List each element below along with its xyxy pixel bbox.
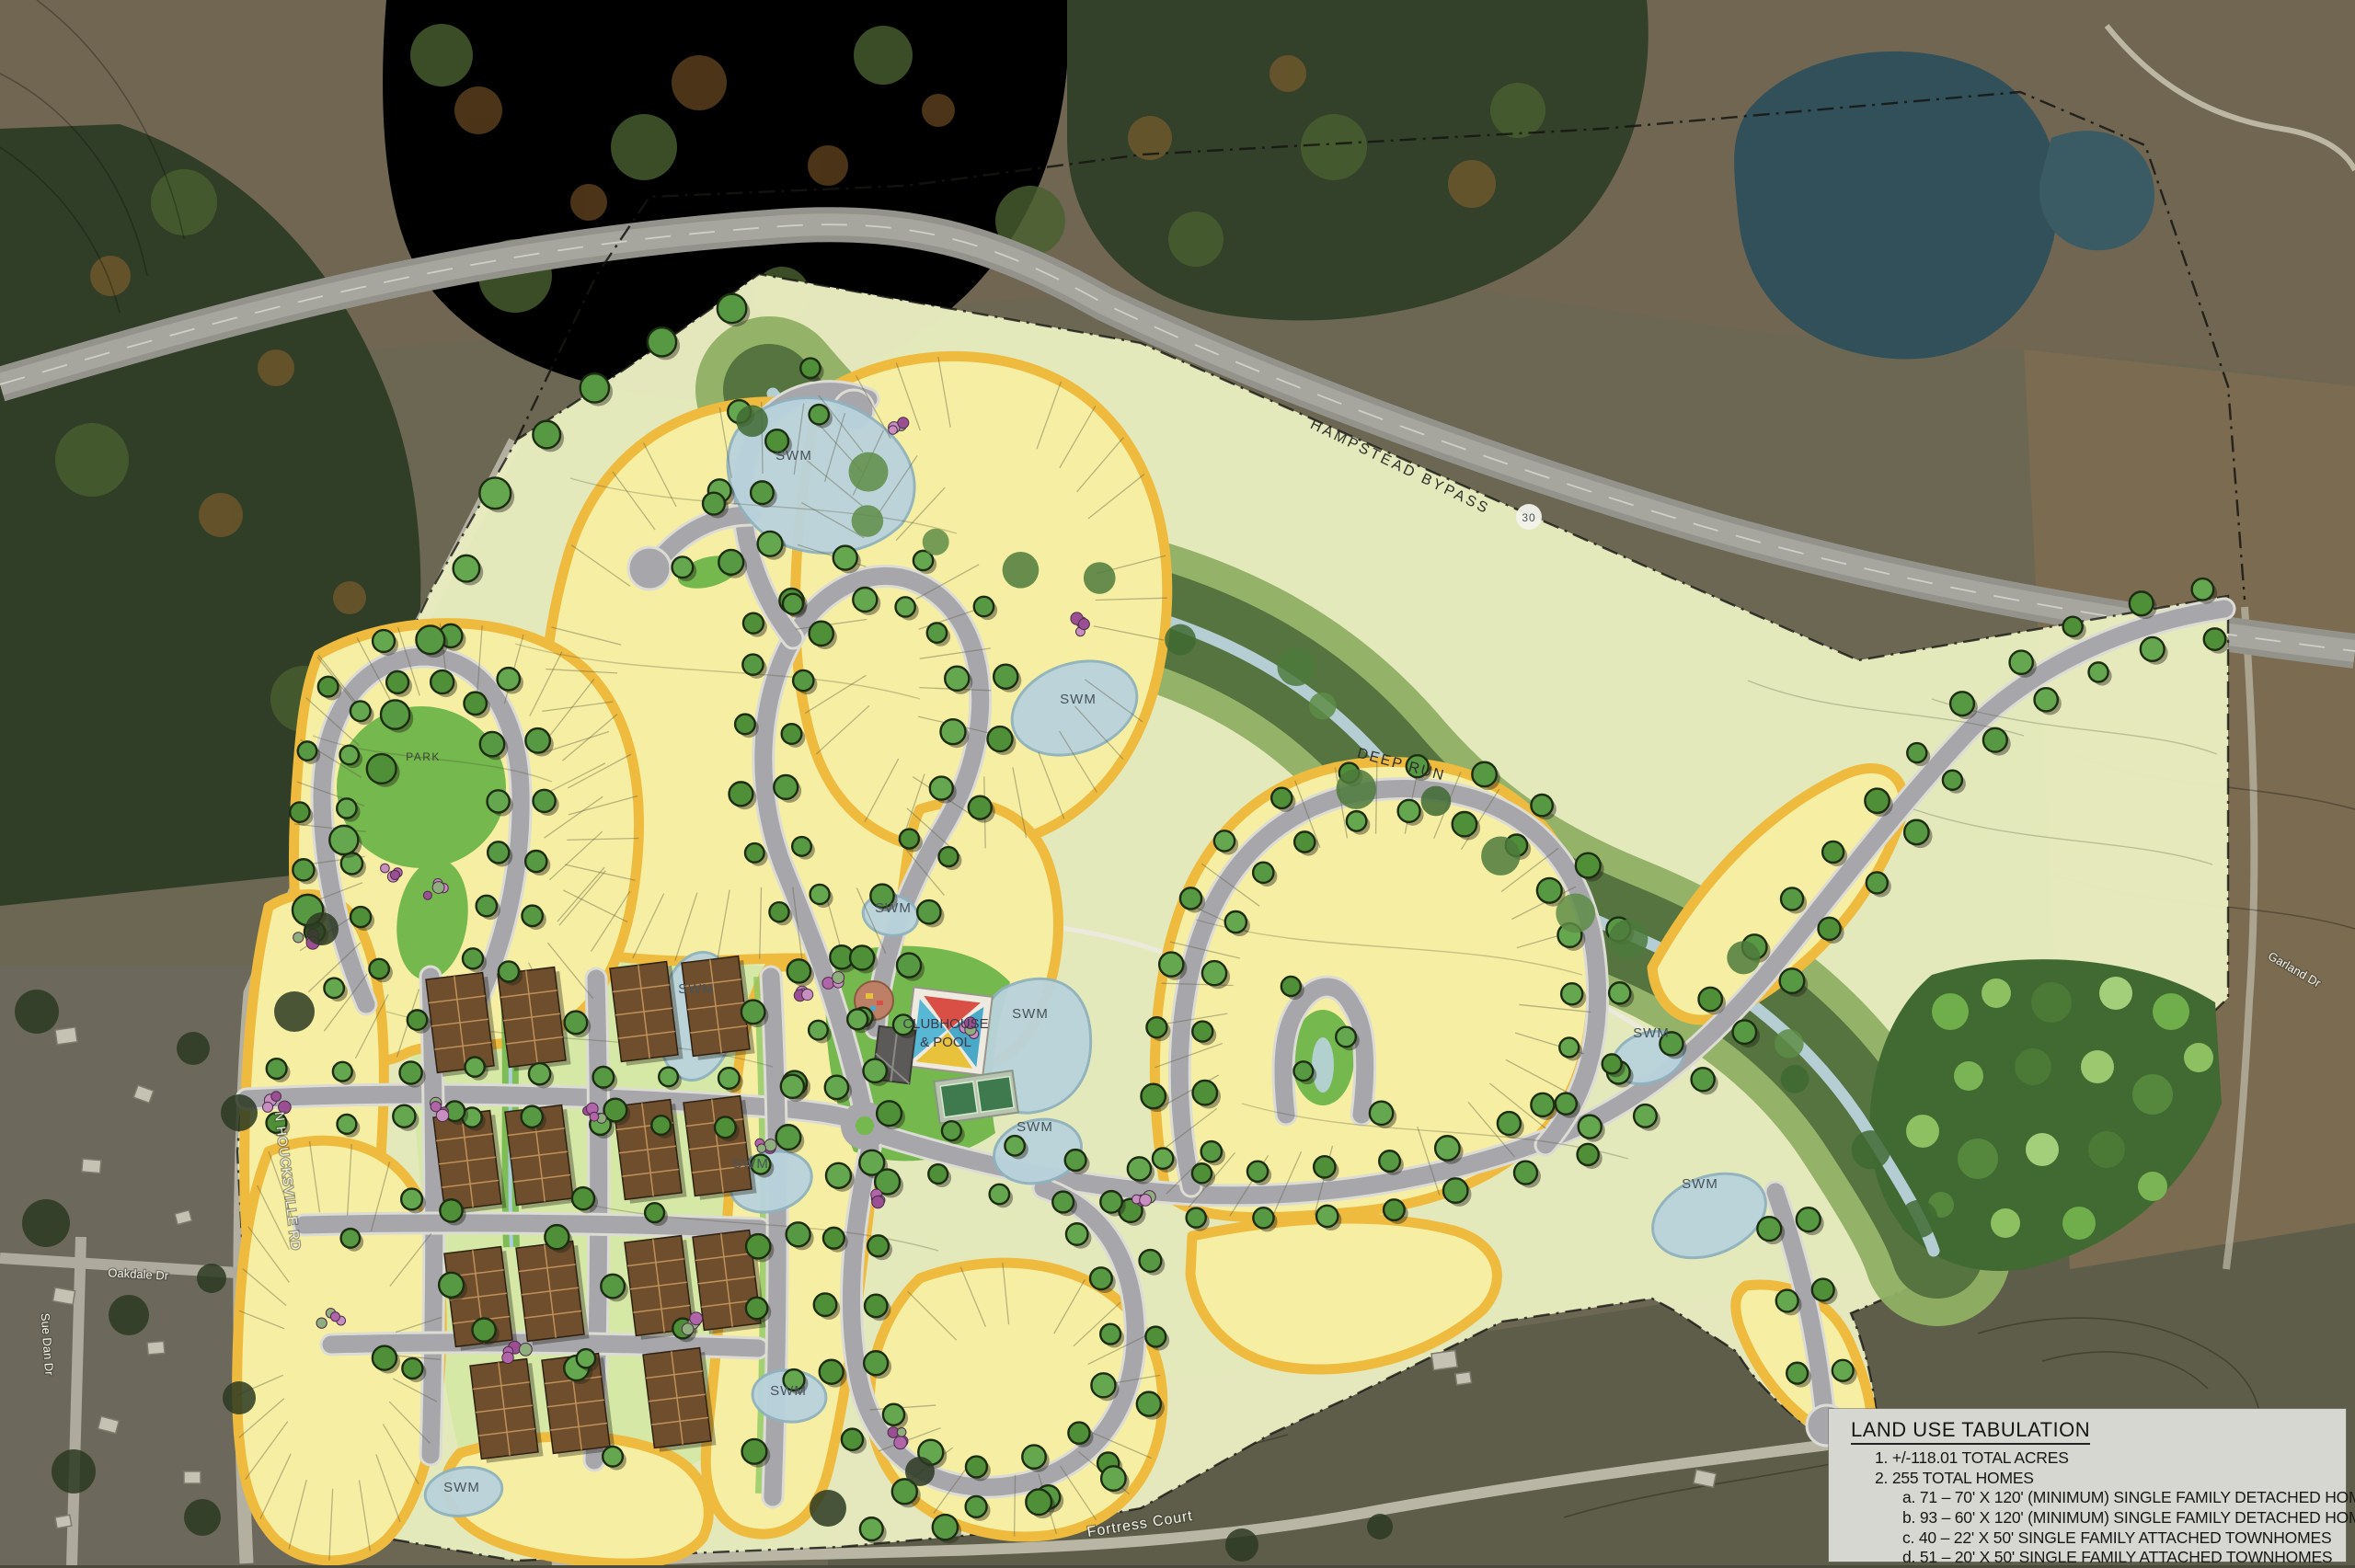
- tree-symbol-icon: [1537, 878, 1562, 903]
- tree-symbol-icon: [1733, 1020, 1756, 1043]
- aerial-tree: [305, 912, 339, 945]
- aerial-tree: [1225, 1528, 1258, 1562]
- tree-symbol-icon: [826, 1163, 851, 1188]
- tree-symbol-icon: [793, 670, 813, 691]
- tree-symbol-icon: [2204, 628, 2225, 649]
- tree-symbol-icon: [2010, 651, 2033, 674]
- tree-symbol-icon: [928, 1164, 948, 1184]
- shrub-icon: [502, 1352, 513, 1363]
- route-shield-number: 30: [1522, 511, 1535, 524]
- aerial-tree: [223, 1381, 256, 1414]
- forest-tree-icon: [1609, 920, 1648, 958]
- tree-symbol-icon: [1435, 1136, 1459, 1160]
- tree-symbol-icon: [373, 630, 395, 652]
- townhome-block: [516, 1241, 590, 1345]
- tree-symbol-icon: [529, 1063, 550, 1084]
- tree-symbol-icon: [1180, 887, 1201, 909]
- tree-symbol-icon: [1379, 1150, 1400, 1172]
- forest-tree-icon: [1775, 1029, 1803, 1058]
- swm-label: SWM: [875, 900, 912, 916]
- forest-tree-icon: [849, 452, 889, 492]
- tree-symbol-icon: [940, 719, 965, 744]
- legend-item-th-22: c. 40 – 22' X 50' SINGLE FAMILY ATTACHED…: [1902, 1528, 2346, 1549]
- shrub-icon: [432, 882, 444, 894]
- tree-symbol-icon: [1950, 692, 1974, 715]
- shrub-icon: [262, 1102, 272, 1112]
- aerial-tree: [810, 1490, 846, 1527]
- tree-symbol-icon: [350, 907, 371, 927]
- tree-symbol-icon: [601, 1275, 625, 1299]
- land-use-tabulation: LAND USE TABULATION 1. +/-118.01 TOTAL A…: [1829, 1409, 2346, 1562]
- tree-symbol-icon: [1187, 1208, 1206, 1228]
- tree-symbol-icon: [290, 802, 309, 821]
- shrub-icon: [590, 1112, 599, 1121]
- tree-symbol-icon: [1201, 1141, 1222, 1162]
- tree-symbol-icon: [2063, 617, 2083, 636]
- tree-symbol-icon: [1453, 812, 1476, 836]
- aerial-tree: [905, 1457, 935, 1486]
- shrub-icon: [802, 989, 813, 1000]
- shrub-icon: [757, 1144, 766, 1153]
- swm-label: SWM: [770, 1383, 807, 1399]
- tree-symbol-icon: [1578, 1144, 1599, 1165]
- tree-symbol-icon: [825, 1076, 848, 1099]
- tree-symbol-icon: [1370, 1102, 1393, 1125]
- tree-symbol-icon: [933, 1515, 958, 1539]
- tree-symbol-icon: [735, 715, 755, 735]
- tree-symbol-icon: [718, 294, 747, 324]
- legend-title: LAND USE TABULATION: [1851, 1418, 2090, 1445]
- tree-symbol-icon: [1141, 1084, 1165, 1108]
- tree-symbol-icon: [1904, 820, 1928, 844]
- tree-symbol-icon: [1757, 1217, 1781, 1241]
- tree-symbol-icon: [648, 327, 676, 356]
- tree-symbol-icon: [745, 843, 764, 863]
- tree-symbol-icon: [1159, 953, 1183, 977]
- tree-symbol-icon: [672, 556, 694, 578]
- park-label: PARK: [406, 750, 441, 763]
- tree-symbol-icon: [930, 777, 953, 800]
- tree-symbol-icon: [464, 692, 486, 715]
- tree-symbol-icon: [758, 532, 783, 556]
- tree-symbol-icon: [860, 1517, 883, 1540]
- tree-symbol-icon: [577, 1349, 595, 1368]
- tree-symbol-icon: [1832, 1360, 1854, 1381]
- tree-symbol-icon: [809, 1021, 828, 1040]
- shrub-icon: [682, 1323, 694, 1335]
- tree-symbol-icon: [350, 701, 371, 721]
- tree-symbol-icon: [465, 1057, 484, 1076]
- tree-symbol-icon: [333, 1062, 352, 1082]
- tree-symbol-icon: [2130, 591, 2154, 615]
- forest-tree-icon: [1421, 786, 1452, 817]
- tree-symbol-icon: [1066, 1223, 1088, 1245]
- existing-house: [1455, 1372, 1472, 1385]
- tree-symbol-icon: [865, 1295, 888, 1318]
- forest-tree-icon: [1336, 769, 1376, 809]
- existing-house: [184, 1471, 201, 1483]
- tree-symbol-icon: [439, 1273, 464, 1298]
- tree-symbol-icon: [776, 1125, 801, 1150]
- tree-symbol-icon: [2035, 688, 2058, 711]
- tree-symbol-icon: [1137, 1392, 1161, 1416]
- tree-symbol-icon: [267, 1059, 287, 1079]
- swm-label: SWM: [1017, 1119, 1053, 1135]
- townhome-block: [426, 972, 500, 1077]
- tree-symbol-icon: [1005, 1136, 1024, 1155]
- legend-item-sfd-70: a. 71 – 70' X 120' (MINIMUM) SINGLE FAMI…: [1902, 1488, 2346, 1508]
- shrub-icon: [833, 971, 844, 983]
- tree-symbol-icon: [938, 847, 958, 866]
- tree-symbol-icon: [340, 746, 359, 764]
- tree-symbol-icon: [1609, 982, 1630, 1003]
- tree-symbol-icon: [810, 405, 829, 424]
- tree-symbol-icon: [945, 667, 969, 691]
- tree-symbol-icon: [1100, 1191, 1122, 1213]
- tree-symbol-icon: [900, 830, 919, 849]
- tree-symbol-icon: [994, 665, 1017, 689]
- tree-symbol-icon: [329, 826, 358, 854]
- shrub-icon: [520, 1343, 533, 1356]
- tree-symbol-icon: [1819, 918, 1841, 940]
- tree-symbol-icon: [1514, 1162, 1537, 1185]
- tree-symbol-icon: [810, 622, 833, 646]
- tree-symbol-icon: [769, 902, 788, 921]
- shrub-icon: [390, 870, 399, 879]
- shrub-icon: [316, 1318, 327, 1328]
- tree-symbol-icon: [1561, 983, 1582, 1004]
- tree-symbol-icon: [338, 1115, 357, 1134]
- tree-symbol-icon: [810, 885, 830, 904]
- tree-symbol-icon: [545, 1225, 569, 1249]
- existing-house: [82, 1159, 101, 1173]
- tree-symbol-icon: [1907, 743, 1926, 762]
- tree-symbol-icon: [1867, 872, 1888, 893]
- forest-tree-icon: [1003, 552, 1040, 589]
- aerial-tree: [274, 991, 315, 1032]
- tree-symbol-icon: [659, 1068, 678, 1087]
- townhome-block: [684, 1095, 757, 1200]
- tree-symbol-icon: [522, 906, 542, 926]
- tree-symbol-icon: [751, 481, 774, 504]
- tree-symbol-icon: [1780, 968, 1805, 993]
- tree-symbol-icon: [408, 1010, 427, 1029]
- tree-symbol-icon: [966, 1457, 987, 1478]
- tree-symbol-icon: [1472, 762, 1496, 786]
- tree-symbol-icon: [1865, 789, 1889, 813]
- tree-symbol-icon: [917, 900, 940, 923]
- tree-symbol-icon: [850, 945, 874, 969]
- tree-symbol-icon: [386, 671, 408, 693]
- tree-symbol-icon: [298, 741, 316, 760]
- swm-label: SWM: [678, 981, 715, 997]
- forest-tree-icon: [852, 505, 884, 537]
- tree-symbol-icon: [1202, 961, 1226, 985]
- tree-symbol-icon: [416, 625, 444, 654]
- forest-tree-icon: [1165, 624, 1196, 656]
- tree-symbol-icon: [480, 732, 504, 756]
- tree-symbol-icon: [792, 837, 811, 856]
- tree-symbol-icon: [479, 477, 511, 509]
- tree-symbol-icon: [2088, 662, 2108, 681]
- tree-symbol-icon: [942, 1121, 961, 1140]
- tree-symbol-icon: [867, 1235, 889, 1256]
- tree-symbol-icon: [603, 1447, 623, 1467]
- legend-item-total-acres: 1. +/-118.01 TOTAL ACRES: [1875, 1448, 2346, 1469]
- tree-symbol-icon: [1214, 830, 1235, 851]
- clubhouse-pool-label: & POOL: [920, 1035, 971, 1050]
- tree-symbol-icon: [402, 1358, 422, 1379]
- tree-symbol-icon: [645, 1203, 664, 1222]
- tree-symbol-icon: [373, 1346, 396, 1370]
- forest-tree-icon: [1084, 562, 1116, 594]
- aerial-tree: [177, 1032, 210, 1065]
- tree-symbol-icon: [974, 597, 994, 616]
- tree-symbol-icon: [1293, 1061, 1313, 1081]
- tree-symbol-icon: [1140, 1250, 1162, 1272]
- tree-symbol-icon: [1781, 887, 1803, 910]
- tree-symbol-icon: [842, 1429, 863, 1450]
- tree-symbol-icon: [1812, 1279, 1834, 1301]
- tree-symbol-icon: [1531, 1093, 1554, 1116]
- aerial-tree: [1367, 1514, 1393, 1539]
- forest-tree-icon: [1481, 837, 1520, 876]
- tree-symbol-icon: [847, 1009, 867, 1029]
- tree-symbol-icon: [1271, 788, 1292, 808]
- swm-label: SWM: [1060, 692, 1097, 707]
- forest-tree-icon: [736, 406, 767, 437]
- shrub-icon: [690, 1312, 703, 1325]
- swm-label: SWM: [1633, 1025, 1670, 1041]
- tree-symbol-icon: [1347, 811, 1367, 831]
- tree-symbol-icon: [401, 1189, 422, 1210]
- tree-symbol-icon: [746, 1234, 770, 1258]
- tree-symbol-icon: [883, 1404, 904, 1425]
- tree-symbol-icon: [1314, 1156, 1335, 1177]
- swm-label: SWM: [1682, 1176, 1718, 1192]
- tree-symbol-icon: [1556, 1093, 1577, 1115]
- swm-label: SWM: [732, 1156, 769, 1172]
- tree-symbol-icon: [1398, 800, 1420, 822]
- tree-symbol-icon: [987, 727, 1012, 751]
- existing-house: [52, 1288, 75, 1305]
- tree-symbol-icon: [896, 597, 915, 616]
- tree-symbol-icon: [1192, 1163, 1212, 1183]
- tree-symbol-icon: [580, 373, 609, 402]
- aerial-tree: [197, 1264, 226, 1293]
- tree-symbol-icon: [341, 1229, 361, 1248]
- townhome-block: [470, 1358, 544, 1463]
- tree-symbol-icon: [463, 948, 483, 968]
- tree-symbol-icon: [1225, 911, 1246, 933]
- tree-symbol-icon: [1797, 1207, 1821, 1231]
- forest-tree-icon: [1309, 692, 1336, 719]
- tree-symbol-icon: [1776, 1290, 1798, 1312]
- tree-symbol-icon: [1559, 1037, 1579, 1057]
- site-plan: HAMPSTEAD BYPASSDEEP RUNPARKCLUBHOUSE& P…: [0, 0, 2355, 1565]
- existing-house: [55, 1027, 77, 1045]
- tree-symbol-icon: [729, 782, 752, 806]
- tree-symbol-icon: [853, 588, 877, 612]
- tree-symbol-icon: [565, 1012, 588, 1035]
- tree-symbol-icon: [863, 1059, 886, 1082]
- tree-symbol-icon: [969, 796, 992, 819]
- tree-symbol-icon: [1943, 771, 1962, 790]
- tree-symbol-icon: [454, 555, 480, 582]
- shrub-icon: [1140, 1194, 1152, 1206]
- townhome-block: [610, 961, 684, 1066]
- tree-symbol-icon: [525, 728, 549, 752]
- tree-symbol-icon: [498, 668, 520, 690]
- aerial-tree: [109, 1295, 149, 1335]
- tree-symbol-icon: [782, 724, 802, 744]
- aerial-tree: [184, 1499, 221, 1536]
- tree-symbol-icon: [440, 1199, 462, 1221]
- tree-symbol-icon: [715, 1116, 736, 1138]
- tree-symbol-icon: [743, 613, 764, 634]
- tree-symbol-icon: [477, 896, 497, 916]
- shrub-icon: [293, 933, 304, 943]
- tree-symbol-icon: [1692, 1068, 1715, 1091]
- tree-symbol-icon: [1065, 1150, 1086, 1171]
- tree-symbol-icon: [1253, 863, 1273, 883]
- tree-symbol-icon: [1253, 1207, 1273, 1228]
- forest-tree-icon: [1556, 893, 1595, 933]
- tree-symbol-icon: [534, 790, 556, 812]
- tree-symbol-icon: [990, 1185, 1009, 1204]
- tree-symbol-icon: [877, 1101, 902, 1126]
- tree-symbol-icon: [742, 655, 763, 675]
- shrub-icon: [889, 426, 898, 435]
- tree-symbol-icon: [525, 851, 546, 872]
- tree-symbol-icon: [1576, 853, 1601, 878]
- tree-symbol-icon: [783, 594, 803, 614]
- swm-label: SWM: [775, 448, 812, 464]
- forest-tree-icon: [1900, 1200, 1937, 1238]
- tree-symbol-icon: [2141, 637, 2165, 661]
- tree-symbol-icon: [533, 421, 560, 449]
- tree-symbol-icon: [1068, 1423, 1089, 1444]
- tree-symbol-icon: [499, 961, 519, 981]
- site-plan-map: HAMPSTEAD BYPASSDEEP RUNPARKCLUBHOUSE& P…: [0, 0, 2355, 1565]
- tree-symbol-icon: [1983, 728, 2007, 752]
- shrub-icon: [271, 1092, 281, 1102]
- tree-symbol-icon: [774, 775, 798, 799]
- tree-symbol-icon: [522, 1106, 543, 1127]
- tree-symbol-icon: [1101, 1466, 1126, 1491]
- shrub-icon: [431, 1102, 441, 1112]
- clubhouse-pool-label: CLUBHOUSE: [902, 1016, 988, 1032]
- tree-symbol-icon: [1146, 1017, 1166, 1037]
- tree-symbol-icon: [1294, 831, 1315, 852]
- tree-symbol-icon: [593, 1067, 615, 1088]
- tree-symbol-icon: [864, 1351, 888, 1375]
- tree-symbol-icon: [742, 1439, 767, 1464]
- shrub-icon: [381, 864, 390, 873]
- tree-symbol-icon: [746, 1298, 767, 1319]
- tree-symbol-icon: [927, 623, 947, 642]
- shrub-icon: [330, 1312, 339, 1322]
- tree-symbol-icon: [1128, 1157, 1151, 1180]
- tree-symbol-icon: [814, 1293, 837, 1316]
- tree-symbol-icon: [1281, 977, 1301, 996]
- swm-label: SWM: [1012, 1006, 1049, 1022]
- tree-symbol-icon: [1153, 1148, 1173, 1168]
- tree-symbol-icon: [781, 1075, 804, 1098]
- tree-symbol-icon: [572, 1187, 594, 1209]
- tree-symbol-icon: [718, 550, 743, 575]
- tree-symbol-icon: [1192, 1022, 1212, 1042]
- shrub-icon: [1078, 619, 1089, 630]
- shrub-icon: [897, 1427, 906, 1436]
- tree-symbol-icon: [293, 859, 314, 880]
- tree-symbol-icon: [703, 493, 725, 515]
- tree-symbol-icon: [1443, 1178, 1467, 1202]
- tree-symbol-icon: [324, 979, 343, 998]
- tree-symbol-icon: [1247, 1162, 1268, 1182]
- tree-symbol-icon: [1579, 1116, 1602, 1139]
- tree-symbol-icon: [488, 790, 510, 812]
- tree-symbol-icon: [823, 1228, 844, 1249]
- aerial-tree: [22, 1199, 70, 1247]
- tree-symbol-icon: [741, 1001, 765, 1024]
- forest-tree-icon: [1852, 1130, 1890, 1169]
- tree-symbol-icon: [1026, 1489, 1051, 1515]
- tree-symbol-icon: [1384, 1199, 1405, 1220]
- tree-symbol-icon: [966, 1496, 987, 1517]
- tree-symbol-icon: [367, 754, 396, 784]
- tree-symbol-icon: [1052, 1192, 1074, 1213]
- tree-symbol-icon: [1336, 1027, 1356, 1047]
- tree-symbol-icon: [1603, 1054, 1622, 1073]
- tree-symbol-icon: [1022, 1445, 1045, 1468]
- tree-symbol-icon: [787, 1222, 810, 1246]
- existing-house: [55, 1515, 72, 1528]
- tree-symbol-icon: [2192, 578, 2213, 600]
- tree-symbol-icon: [381, 700, 409, 728]
- lot-line: [1015, 1475, 1016, 1537]
- tree-symbol-icon: [431, 670, 454, 693]
- shrub-icon: [894, 1436, 907, 1449]
- tree-symbol-icon: [393, 1105, 415, 1127]
- tree-symbol-icon: [800, 359, 820, 378]
- aerial-tree: [221, 1094, 258, 1131]
- shrub-icon: [423, 891, 431, 899]
- townhome-block: [643, 1347, 717, 1452]
- tree-symbol-icon: [1822, 841, 1844, 863]
- tree-symbol-icon: [1316, 1206, 1338, 1227]
- tree-symbol-icon: [1091, 1373, 1115, 1397]
- forest-tree-icon: [1727, 941, 1760, 974]
- tree-symbol-icon: [400, 1061, 422, 1083]
- tree-symbol-icon: [1786, 1363, 1808, 1384]
- swm-label: SWM: [443, 1480, 480, 1495]
- tree-symbol-icon: [787, 959, 810, 982]
- legend-item-sfd-60: b. 93 – 60' X 120' (MINIMUM) SINGLE FAMI…: [1902, 1508, 2346, 1528]
- tree-symbol-icon: [1698, 988, 1721, 1011]
- tree-symbol-icon: [718, 1068, 740, 1089]
- forest-tree-icon: [923, 529, 949, 555]
- existing-house: [147, 1341, 165, 1355]
- tree-symbol-icon: [369, 959, 388, 979]
- tree-symbol-icon: [318, 677, 339, 697]
- tree-symbol-icon: [820, 1360, 844, 1384]
- existing-house: [1431, 1350, 1457, 1369]
- forest-tree-icon: [1781, 1065, 1809, 1093]
- tree-symbol-icon: [1100, 1324, 1120, 1345]
- tree-symbol-icon: [1145, 1327, 1166, 1347]
- tree-symbol-icon: [1531, 795, 1552, 816]
